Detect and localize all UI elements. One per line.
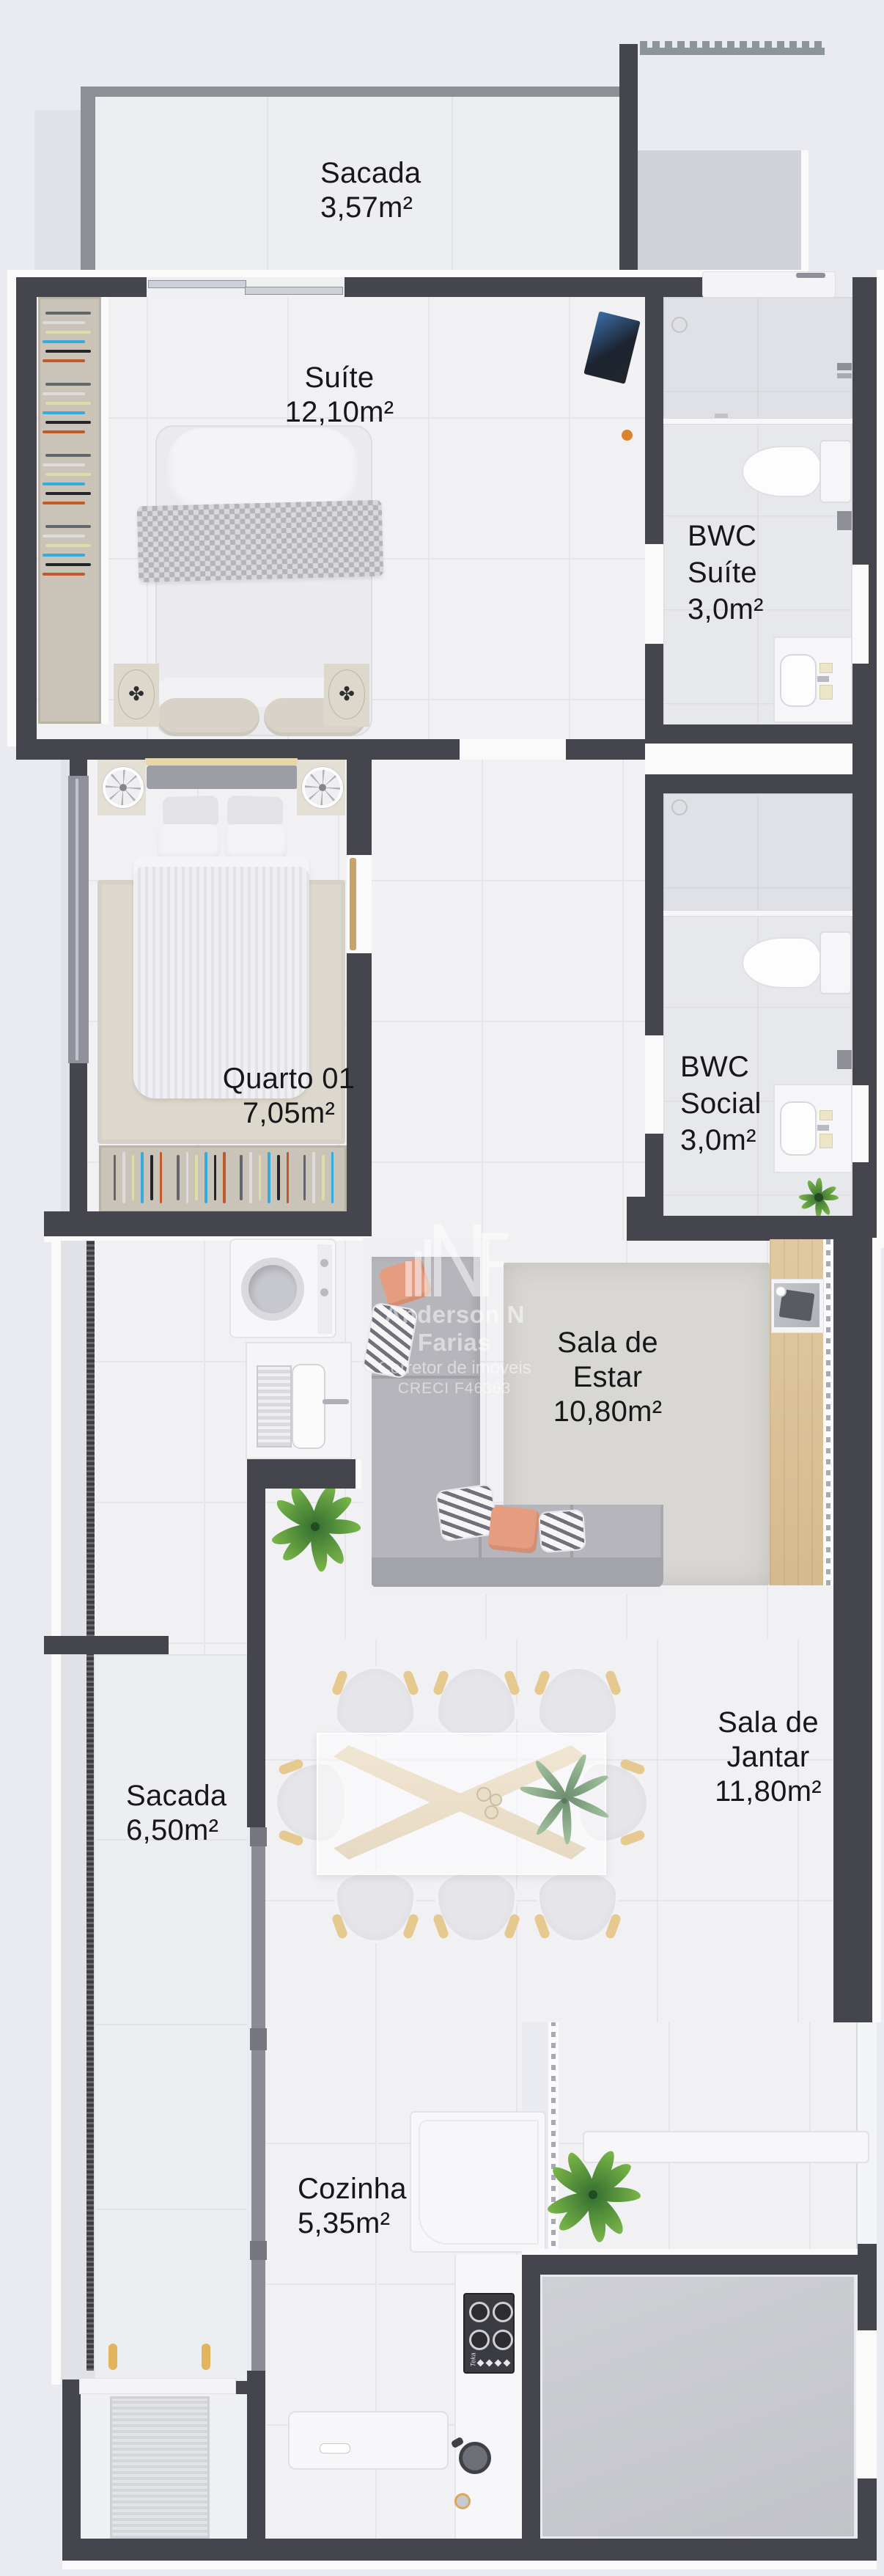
- room-label-bwc-social: BWC Social 3,0m²: [680, 1049, 762, 1159]
- shower-drain: [671, 317, 688, 333]
- potted-plant-living: [270, 1481, 361, 1572]
- mat-oval: ✤: [328, 669, 365, 719]
- sliding-door-panel: [245, 287, 343, 295]
- dining-chair: [435, 1870, 517, 1943]
- shower-glass-divider: [663, 911, 852, 916]
- sink-basin: [780, 1101, 817, 1156]
- soap-dish: [819, 663, 833, 673]
- decor-orange-vase: [622, 430, 633, 441]
- room-label-sala-estar: Sala de Estar 10,80m²: [542, 1326, 673, 1429]
- window-glass-line: [75, 779, 78, 1060]
- wall-segment: [62, 2379, 81, 2561]
- quarto-head-shelf: [145, 758, 298, 766]
- sacada-left-floor: [94, 1654, 247, 2379]
- watermark-creci: CRECI F46363: [359, 1380, 550, 1398]
- utensil: [320, 2443, 350, 2454]
- quarto-headboard: [147, 766, 298, 789]
- sofa-backrest: [370, 1557, 663, 1588]
- shower-knob: [837, 373, 852, 378]
- nightstand-decor: [103, 767, 144, 808]
- bwc-social-shower-floor: [663, 793, 852, 913]
- balcony-shelf: [79, 2378, 236, 2394]
- dining-chair: [537, 1666, 619, 1739]
- washer-knob: [320, 1259, 328, 1267]
- gas-outlet: [454, 2493, 471, 2509]
- wall-segment: [645, 297, 663, 544]
- cooktop-knob: [504, 2360, 511, 2367]
- suite-sliding-door: [147, 277, 345, 297]
- kitchen-lower-cabinet: [288, 2411, 449, 2470]
- wall-right-exterior: [833, 1238, 872, 2022]
- cooktop-knob: [495, 2360, 502, 2367]
- doormat: [110, 2396, 210, 2539]
- wall-segment: [645, 644, 663, 724]
- bwc-social-door-opening: [645, 1035, 663, 1134]
- quarto-closet-clothes: [110, 1151, 337, 1207]
- quarto-pillow: [157, 824, 220, 859]
- cup: [775, 1285, 787, 1297]
- burner: [493, 2330, 513, 2350]
- quarto-pillow-back: [226, 796, 283, 829]
- wall-trim: [877, 270, 884, 1248]
- wall-segment: [645, 724, 877, 744]
- wall-trim: [7, 270, 16, 746]
- sofa-pillow-striped: [437, 1485, 497, 1541]
- nightstand-decor: [302, 767, 343, 808]
- room-label-quarto01: Quarto 01 7,05m²: [218, 1062, 359, 1131]
- quarto-window: [68, 776, 89, 1063]
- room-label-sala-jantar: Sala de Jantar 11,80m²: [702, 1706, 834, 1809]
- dining-chair: [334, 1666, 416, 1739]
- wall-segment: [70, 1063, 87, 1216]
- wall-right-exterior: [833, 1217, 877, 1238]
- sacada-top-rail: [82, 87, 636, 97]
- door-connector: [250, 2241, 267, 2260]
- wall-bottom-exterior: [62, 2539, 877, 2561]
- cooktop-brand: Teka: [470, 2352, 477, 2366]
- wall-segment: [566, 739, 645, 760]
- wall-segment: [44, 1211, 372, 1236]
- wall-trim: [522, 2249, 877, 2255]
- room-label-suite: Suíte 12,10m²: [281, 361, 398, 430]
- mat-oval: ✤: [118, 669, 155, 719]
- dining-chair: [334, 1870, 416, 1943]
- laundry-sink: [292, 1364, 325, 1449]
- door-connector: [250, 1827, 267, 1846]
- kitchen-peninsula: [410, 2111, 546, 2253]
- ledge: [645, 744, 877, 774]
- shower-faucet: [796, 273, 825, 278]
- shower-drain: [671, 799, 688, 815]
- bwc-social-window: [852, 1085, 869, 1162]
- broom-handle: [202, 2344, 210, 2370]
- burner: [469, 2330, 490, 2350]
- wall-segment: [16, 739, 460, 760]
- burner: [493, 2302, 513, 2322]
- wall-trim: [801, 150, 809, 279]
- wall-segment: [347, 760, 372, 855]
- room-label-bwc-suite: BWC Suíte 3,0m²: [688, 518, 764, 628]
- suite-bed-blanket: [137, 500, 384, 583]
- washing-machine: [229, 1239, 336, 1338]
- toilet-tank: [819, 931, 852, 994]
- quarto-pillow: [224, 824, 287, 859]
- door-connector: [250, 2028, 267, 2050]
- table-bowl: [485, 1805, 498, 1819]
- shower-glass-divider: [663, 419, 852, 424]
- laundry-counter: [246, 1342, 352, 1459]
- potted-plant-terrace: [545, 2147, 641, 2242]
- wall-segment: [522, 2255, 540, 2561]
- dining-chair: [537, 1870, 619, 1943]
- potted-plant-small: [799, 1178, 839, 1217]
- soap-dish: [819, 1134, 833, 1148]
- room-label-sacada-left: Sacada 6,50m²: [126, 1779, 226, 1848]
- quarto-nightstand: [97, 760, 146, 815]
- soap-dish: [819, 685, 833, 700]
- wall-left-exterior: [16, 277, 37, 741]
- wall-trim: [872, 1238, 881, 2022]
- toilet-tank: [819, 440, 852, 503]
- duct-area: [638, 150, 801, 279]
- sofa-edge: [370, 1587, 663, 1594]
- suite-bedside-mat: ✤: [114, 664, 159, 727]
- watermark-name: Anderson N Farias: [359, 1301, 550, 1357]
- shower-knob: [837, 363, 852, 370]
- bwc-suite-shower-floor: [663, 297, 852, 422]
- suite-door-opening: [460, 739, 566, 760]
- sink-faucet: [817, 1125, 829, 1131]
- dining-chair: [435, 1666, 517, 1739]
- wall-segment: [44, 1636, 169, 1654]
- burner: [469, 2302, 490, 2322]
- suite-closet-clothes: [41, 305, 97, 716]
- table-bowl: [490, 1794, 502, 1806]
- wall-segment: [247, 1489, 265, 1827]
- washer-knob: [320, 1288, 328, 1296]
- hallway-floor: [372, 760, 645, 1241]
- wall-segment: [627, 1197, 663, 1241]
- sink-basin: [780, 654, 817, 707]
- wall-trim: [62, 2561, 877, 2569]
- toilet-bowl: [742, 446, 822, 497]
- balcony-sliding-door: [251, 1827, 265, 2371]
- bwc-suite-vanity: [773, 636, 852, 723]
- soap-dish: [819, 1110, 833, 1120]
- washboard: [257, 1365, 292, 1447]
- sink-faucet: [817, 676, 829, 682]
- bwc-suite-window: [852, 565, 869, 664]
- wall-segment: [645, 774, 877, 793]
- screen-track: [823, 1239, 833, 1585]
- bwc-social-vanity: [773, 1084, 852, 1173]
- suite-bedside-mat: ✤: [324, 664, 369, 727]
- broom-handle: [108, 2344, 117, 2370]
- wall-segment: [645, 793, 663, 1035]
- watermark-logo: [399, 1220, 509, 1296]
- shaft-floor: [540, 2275, 856, 2539]
- toilet-paper-holder: [837, 511, 852, 530]
- wall-segment: [70, 760, 87, 776]
- sofa-pillow-striped: [539, 1511, 584, 1552]
- cooktop-knob: [486, 2360, 493, 2367]
- floor-plan: ✤ ✤: [0, 0, 884, 2576]
- side-desk: [771, 1279, 824, 1333]
- quarto-pillow-back: [162, 796, 218, 829]
- room-label-sacada-top: Sacada 3,57m²: [320, 156, 421, 225]
- wall-trim: [356, 1459, 361, 1489]
- quarto-nightstand: [297, 760, 345, 815]
- louver-vent: [640, 41, 825, 55]
- wall-segment: [619, 44, 638, 279]
- cooktop: Teka: [463, 2293, 515, 2374]
- sink-faucet: [323, 1399, 349, 1404]
- watermark: Anderson N Farias Corretor de imóveis CR…: [359, 1220, 550, 1398]
- cooking-pot: [459, 2442, 491, 2474]
- wall-segment: [522, 2255, 877, 2275]
- suite-bed-bench: [157, 698, 259, 736]
- sacada-top-rail-left: [81, 87, 95, 279]
- sofa-pillow-salmon: [487, 1505, 540, 1555]
- washer-door: [241, 1258, 304, 1321]
- wall-segment: [858, 2244, 877, 2330]
- bwc-suite-door-opening: [645, 544, 663, 644]
- room-label-cozinha: Cozinha 5,35m²: [298, 2172, 407, 2241]
- shower-door-handle: [715, 414, 728, 418]
- toilet-bowl: [742, 937, 822, 988]
- counter-inner-line: [419, 2120, 539, 2245]
- wall-trim: [51, 1241, 61, 2385]
- quarto-door-leaf: [350, 858, 356, 950]
- sliding-door-panel: [148, 280, 246, 288]
- table-bowl: [476, 1787, 491, 1802]
- watermark-role: Corretor de imóveis: [359, 1358, 550, 1379]
- cooktop-knob: [477, 2360, 485, 2367]
- wall-segment: [345, 277, 645, 297]
- closet-edge: [101, 297, 108, 724]
- toilet-paper-holder: [837, 1050, 852, 1069]
- shaft-window: [856, 2330, 877, 2478]
- sacada-top-outer-slab: [34, 110, 81, 279]
- wall-segment: [247, 1459, 356, 1489]
